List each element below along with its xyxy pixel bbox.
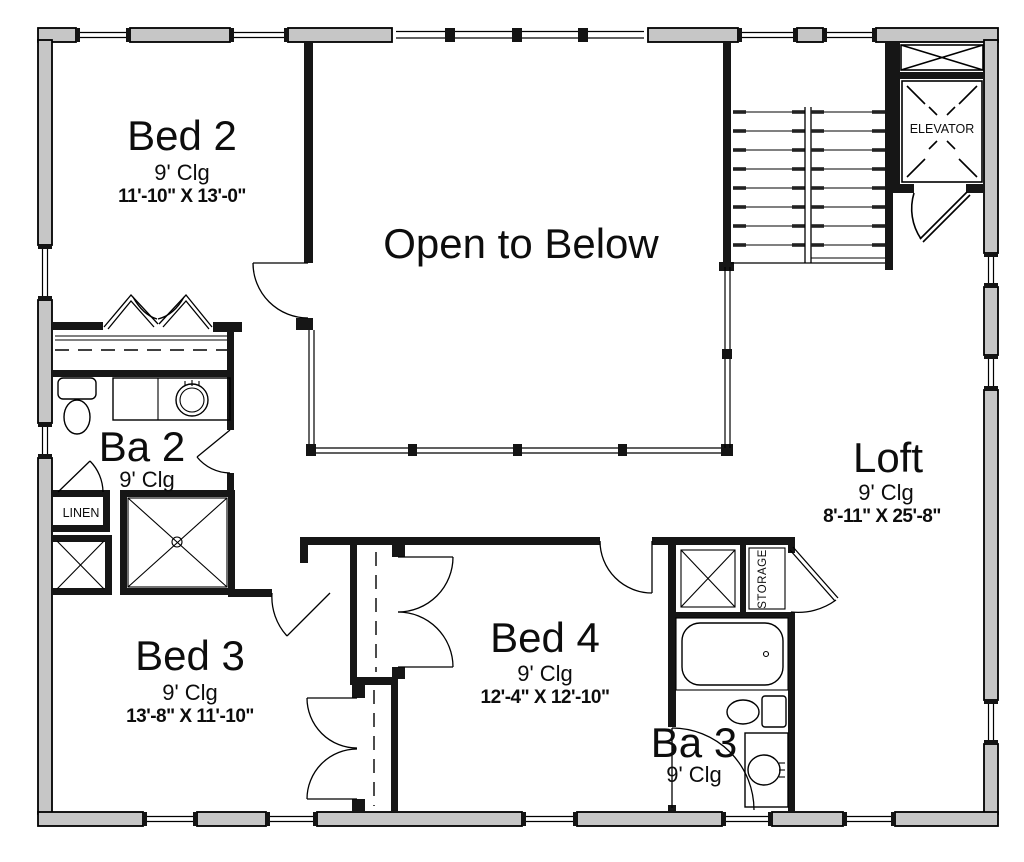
loft-label: Loft [853,434,923,481]
bed4-ceiling-label: 9' Clg [517,661,573,686]
floor-plan-drawing: Bed 2 9' Clg 11'-10" X 13'-0" Open to Be… [0,0,1024,862]
linen-label: LINEN [63,506,100,520]
bed2-label: Bed 2 [127,112,237,159]
bed3-label: Bed 3 [135,632,245,679]
bed4-label: Bed 4 [490,614,600,661]
ba2-ceiling-label: 9' Clg [119,467,175,492]
ba3-ceiling-label: 9' Clg [666,762,722,787]
storage-label: STORAGE [757,549,769,609]
bed4-dims-label: 12'-4" X 12'-10" [481,687,610,708]
ba2-label: Ba 2 [99,423,185,470]
bed2-dims-label: 11'-10" X 13'-0" [118,186,246,207]
bed3-ceiling-label: 9' Clg [162,680,218,705]
floor-plan-page: Bed 2 9' Clg 11'-10" X 13'-0" Open to Be… [0,0,1024,862]
ba3-label: Ba 3 [651,719,737,766]
open-to-below-label: Open to Below [383,220,659,267]
bed2-ceiling-label: 9' Clg [154,160,210,185]
loft-ceiling-label: 9' Clg [858,480,914,505]
bed3-dims-label: 13'-8" X 11'-10" [126,706,254,727]
elevator-label: ELEVATOR [910,122,975,136]
loft-dims-label: 8'-11" X 25'-8" [823,506,941,527]
